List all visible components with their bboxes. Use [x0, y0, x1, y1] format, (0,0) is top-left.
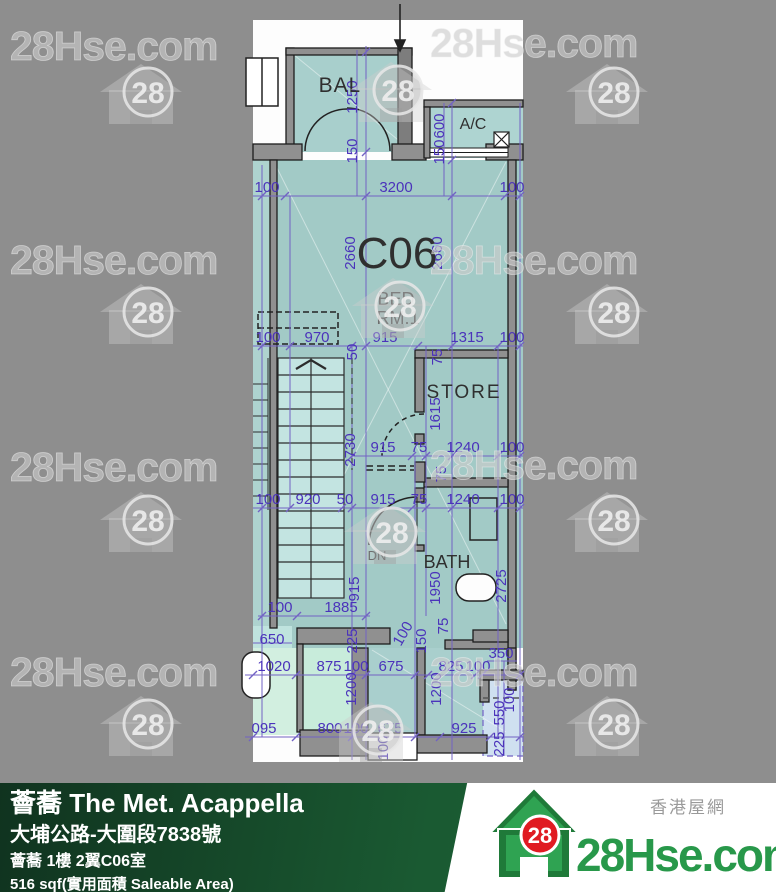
dimension-label: 150 [344, 138, 361, 163]
dimension-label: 100 [501, 687, 518, 712]
dimension-label: 50 [337, 491, 354, 508]
bedroom-label-line1: BED [377, 289, 414, 309]
dimension-label: 1950 [427, 571, 444, 604]
dimension-label: 75 [433, 466, 450, 483]
dimension-label: 75 [411, 491, 428, 508]
dimension-label: 100 [255, 491, 280, 508]
dimension-label: 1200 [343, 672, 360, 705]
dimension-label: 2725 [493, 569, 510, 602]
brand-tagline-cn: 香港屋網 [650, 798, 726, 817]
dimension-label: 100 [499, 329, 524, 346]
dimension-label: 675 [378, 658, 403, 675]
dimension-label: 50 [344, 344, 361, 361]
ac-label: A/C [460, 116, 487, 133]
balcony-label: BAL [319, 74, 362, 97]
dimension-label: 225 [491, 731, 508, 756]
ac-flue-symbol [494, 132, 509, 147]
brand-house-icon: 28 [490, 788, 578, 878]
dimension-label: 1240 [446, 439, 479, 456]
unit-label: C06 [357, 229, 438, 278]
area-info: 516 sqf(實用面積 Saleable Area) [10, 877, 304, 892]
dimension-label: 100 [343, 720, 368, 737]
project-title: 薈蕎 The Met. Acappella [10, 790, 304, 816]
project-address: 大埔公路-大圍段7838號 [10, 825, 304, 845]
dimension-label: 1240 [446, 491, 479, 508]
dimension-label: 100 [255, 329, 280, 346]
dimension-label: 1315 [450, 329, 483, 346]
dimension-label: 920 [295, 491, 320, 508]
dimension-label: 100 [499, 491, 524, 508]
dimension-label: 100 [254, 179, 279, 196]
dimension-label: 100 [267, 599, 292, 616]
dimension-label: 970 [304, 329, 329, 346]
unit-info: 薈蕎 1樓 2翼C06室 [10, 854, 304, 870]
dimension-label: 915 [370, 491, 395, 508]
brand-logo-number: 28 [528, 823, 552, 848]
dimension-label: 1020 [257, 658, 290, 675]
bath-toilet [456, 574, 496, 601]
dimension-label: 875 [316, 658, 341, 675]
brand-site-name: 28Hse.com [576, 829, 776, 881]
dimension-label: 225 [344, 628, 361, 653]
dimension-label: 75 [429, 349, 446, 366]
dimension-label: 915 [372, 329, 397, 346]
stair-down-label: DN [368, 548, 387, 563]
dimension-label: 925 [451, 720, 476, 737]
footer-bar: 薈蕎 The Met. Acappella 大埔公路-大圍段7838號 薈蕎 1… [0, 783, 776, 892]
brand-logo: 28 28Hse.com 香港屋網 [476, 783, 776, 892]
store-label: STORE [426, 382, 501, 403]
dimension-label: 095 [251, 720, 276, 737]
bedroom-label-line2: RM.1 [376, 308, 419, 328]
dimension-label: 150 [431, 139, 448, 164]
dimension-label: 3200 [379, 179, 412, 196]
dimension-label: 1200 [428, 672, 445, 705]
dimension-label: 75 [411, 439, 428, 456]
dimension-label: 675 [377, 720, 402, 737]
dimension-label: 650 [259, 631, 284, 648]
dimension-label: 100 [375, 735, 392, 760]
dimension-label: 915 [370, 439, 395, 456]
floorplan-page: 1003200100100970915131510091575124010010… [0, 0, 776, 892]
dimension-label: 915 [346, 576, 363, 601]
dimension-label: 800 [317, 720, 342, 737]
dimension-label: 2730 [342, 433, 359, 466]
dimension-label: 75 [435, 618, 452, 635]
footer-text-block: 薈蕎 The Met. Acappella 大埔公路-大圍段7838號 薈蕎 1… [10, 786, 304, 892]
dimension-label: 100 [465, 658, 490, 675]
dimension-label: 100 [499, 179, 524, 196]
floorplan-drawing: 1003200100100970915131510091575124010010… [0, 0, 776, 892]
dimension-label: 100 [499, 439, 524, 456]
dimension-label: 350 [488, 645, 513, 662]
dimension-label: 600 [431, 113, 448, 138]
dimension-label: 150 [413, 628, 430, 653]
bath-label: BATH [424, 552, 471, 572]
